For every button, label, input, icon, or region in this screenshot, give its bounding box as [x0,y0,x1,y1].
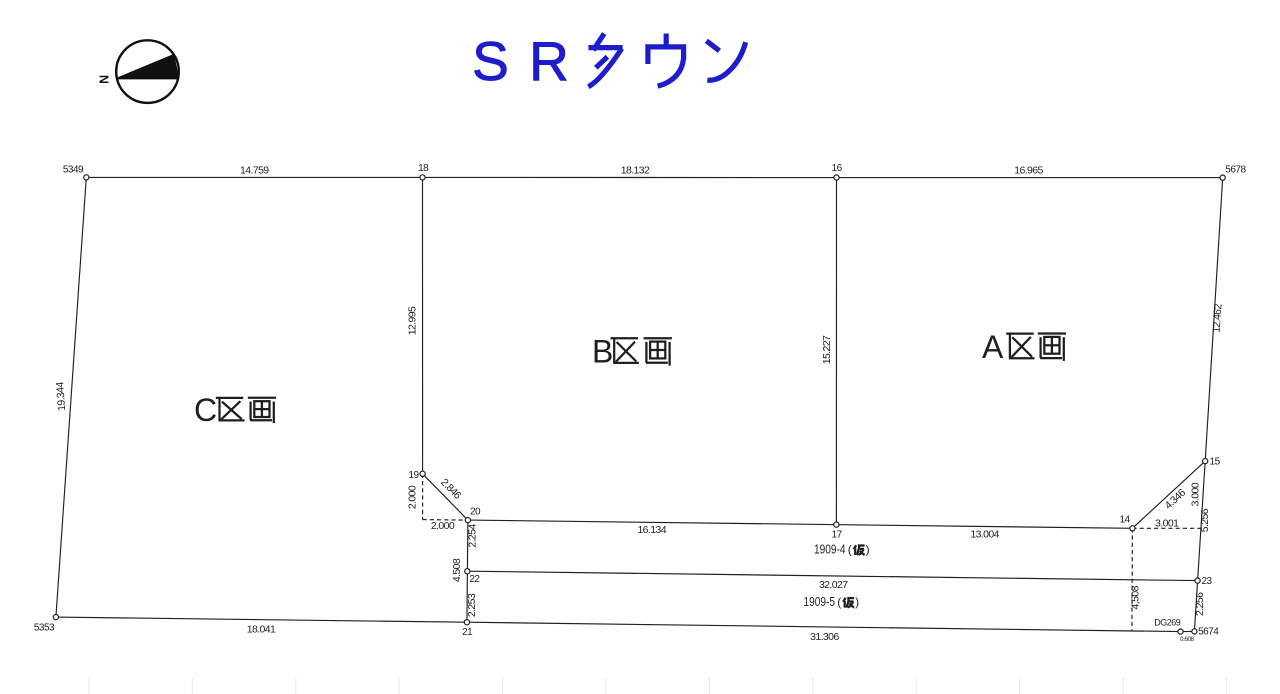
svg-text:5674: 5674 [1198,627,1219,638]
svg-text:3.000: 3.000 [1190,482,1202,506]
svg-text:18.132: 18.132 [621,165,650,177]
svg-text:A: A [982,329,1004,365]
svg-text:0.608: 0.608 [1180,636,1195,643]
svg-text:13.004: 13.004 [970,528,999,540]
svg-text:14.759: 14.759 [240,165,269,177]
svg-text:B: B [592,333,613,369]
svg-text:5678: 5678 [1225,165,1246,176]
svg-text:22: 22 [469,574,480,585]
svg-text:5349: 5349 [63,164,84,175]
svg-text:16: 16 [832,163,843,174]
svg-text:): ) [855,595,859,609]
svg-text:S: S [472,30,509,92]
svg-text:19: 19 [408,470,419,481]
svg-text:32.027: 32.027 [819,579,848,591]
svg-text:21: 21 [462,627,473,638]
svg-text:12.995: 12.995 [407,306,419,335]
svg-text:18.041: 18.041 [247,624,276,636]
svg-text:23: 23 [1201,576,1212,587]
svg-text:): ) [866,542,870,556]
svg-text:5.256: 5.256 [1199,508,1211,532]
svg-text:3.001: 3.001 [1155,517,1179,529]
svg-text:20: 20 [470,507,481,518]
svg-text:16.965: 16.965 [1014,165,1043,177]
svg-text:2.000: 2.000 [431,520,455,532]
svg-text:16.134: 16.134 [637,524,666,536]
svg-text:12.462: 12.462 [1211,303,1225,333]
svg-text:4.508: 4.508 [451,558,463,582]
svg-text:15.227: 15.227 [821,335,833,364]
svg-text:1909-5: 1909-5 [804,595,836,609]
svg-text:C: C [194,392,217,428]
svg-text:(: ( [848,542,852,556]
svg-text:DG269: DG269 [1154,618,1181,628]
svg-text:2.254: 2.254 [466,524,478,548]
svg-text:N: N [98,75,112,84]
svg-text:5353: 5353 [34,623,55,634]
svg-text:19.344: 19.344 [54,381,68,411]
svg-text:15: 15 [1210,457,1221,468]
svg-text:18: 18 [418,163,429,174]
svg-text:(: ( [837,595,841,609]
svg-text:1909-4: 1909-4 [814,542,846,556]
svg-text:17: 17 [832,529,843,540]
svg-text:2.253: 2.253 [466,593,478,617]
svg-text:2.256: 2.256 [1194,592,1206,616]
svg-text:14: 14 [1120,515,1131,526]
svg-text:R: R [529,30,569,92]
svg-text:31.306: 31.306 [810,631,839,643]
svg-text:2.000: 2.000 [407,485,419,509]
svg-text:4,508: 4,508 [1130,585,1142,609]
